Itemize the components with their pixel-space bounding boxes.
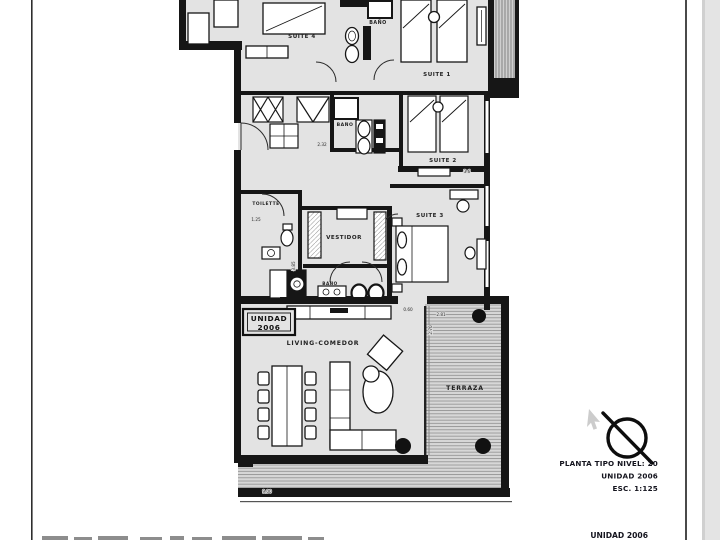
label-toilette: TOILETTE <box>252 201 279 207</box>
titleblock-footer: UNIDAD 2006 <box>590 531 648 540</box>
label-terraza: TERRAZA <box>446 385 484 392</box>
dim-terraza-d: 2.70 <box>428 325 433 335</box>
label-suite4: SUITE 4 <box>288 34 316 40</box>
titleblock-line3: ESC. 1:125 <box>613 484 658 493</box>
kitchen <box>280 297 398 319</box>
label-suite3: SUITE 3 <box>416 213 444 219</box>
unit-box-line2: 2006 <box>258 323 281 332</box>
page-shadow <box>702 0 705 540</box>
floorplan-svg: UNIDAD 2006 SUITE 4 BAÑO SUITE 1 BAÑO SU… <box>0 0 720 540</box>
unit-box-line1: UNIDAD <box>251 314 288 323</box>
label-bano-top: BAÑO <box>369 19 386 26</box>
balcony-strip-top <box>492 0 517 79</box>
titleblock-line1: PLANTA TIPO NIVEL: 20 <box>559 459 658 468</box>
label-suite1: SUITE 1 <box>423 72 451 78</box>
dim-terraza-gap: 0.60 <box>403 307 413 312</box>
label-suite2: SUITE 2 <box>429 158 457 164</box>
titleblock-line2: UNIDAD 2006 <box>601 472 658 481</box>
terrace-edge-line <box>240 501 512 502</box>
unit-label-box: UNIDAD 2006 <box>243 309 295 335</box>
dim-toilette: 1.25 <box>251 217 261 222</box>
dim-suite2: 3.6 <box>464 169 471 174</box>
dim-vestidor: 3.85 <box>291 261 296 271</box>
drawing-page: UNIDAD 2006 SUITE 4 BAÑO SUITE 1 BAÑO SU… <box>0 0 720 540</box>
label-bano-low: BAÑO <box>322 281 338 286</box>
app-background-strip <box>704 0 720 540</box>
sheet-border-right <box>685 0 687 540</box>
label-living: LIVING-COMEDOR <box>287 340 360 347</box>
label-vestidor: VESTIDOR <box>326 235 362 241</box>
terraza-deck-right <box>425 304 505 494</box>
dim-terraza-w: 2.81 <box>436 312 446 317</box>
dim-living-w: 9.00 <box>262 489 272 494</box>
label-bano-mid: BAÑO <box>337 121 354 128</box>
dim-bano-mid: 2.32 <box>317 142 327 147</box>
sheet-border-left <box>31 0 33 540</box>
